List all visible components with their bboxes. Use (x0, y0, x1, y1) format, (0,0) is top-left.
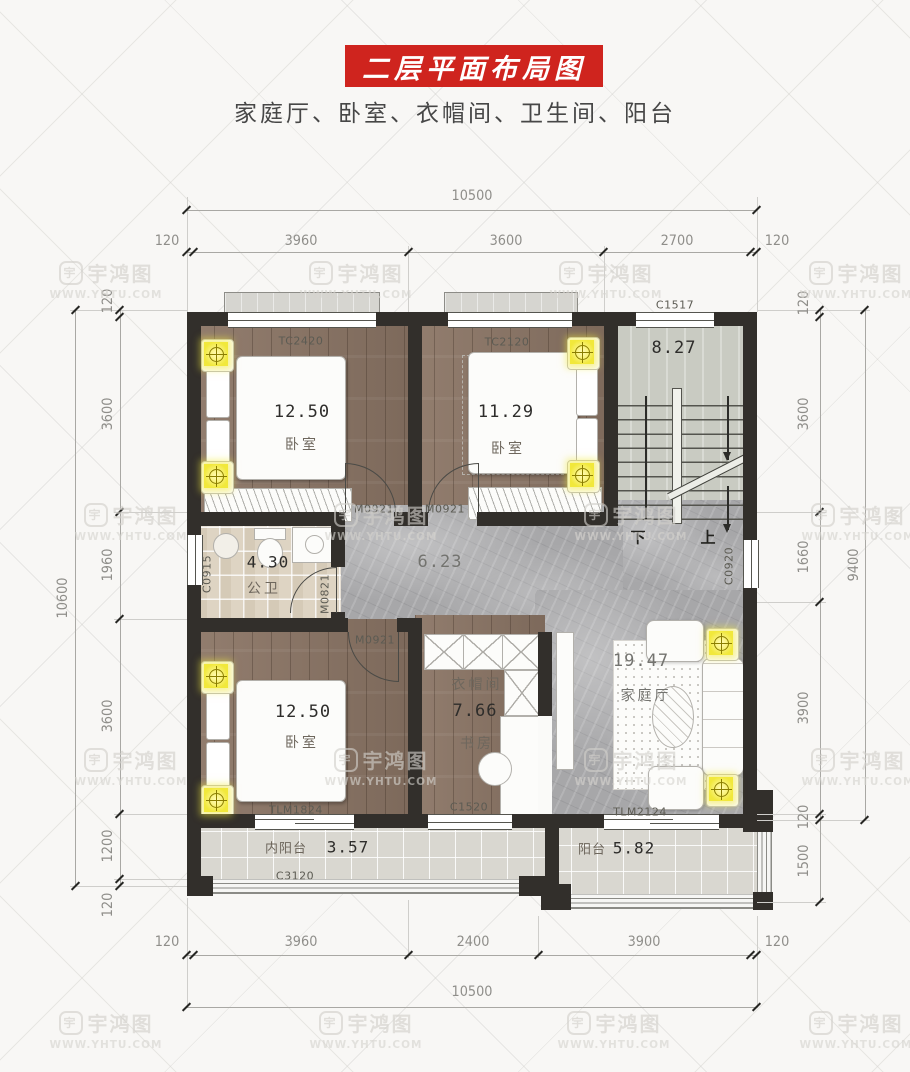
armchair (648, 766, 704, 810)
wall-segment (541, 884, 571, 910)
wall-segment (408, 618, 422, 828)
closet-unit (424, 634, 464, 670)
dim-label: 10500 (452, 188, 493, 204)
tv-cabinet (556, 632, 574, 770)
window-c1520 (428, 814, 512, 830)
extension-line (114, 879, 187, 880)
watermark: 宇宇鸿图WWW.YHTU.COM (792, 745, 910, 788)
extension-line (114, 814, 187, 815)
door-code: TLM2124 (613, 806, 667, 819)
window-code: TC2420 (279, 335, 324, 348)
washbasin (213, 533, 239, 559)
dimension-line (75, 310, 76, 886)
balcony-railing-right (757, 830, 772, 900)
window-tc2120 (448, 312, 572, 328)
room-name: 内阳台 (265, 838, 307, 857)
dim-tick (752, 1002, 761, 1011)
dim-label: 120 (100, 289, 116, 314)
inner-balcony-window-c3120 (213, 879, 519, 894)
room-name: 衣帽间 (452, 674, 503, 694)
dim-label: 120 (765, 934, 790, 950)
watermark-logo-icon: 宇 (811, 748, 835, 772)
ceiling-light-icon (204, 664, 228, 688)
dim-label: 120 (796, 291, 812, 316)
watermark: 宇宇鸿图WWW.YHTU.COM (40, 1008, 172, 1051)
ceiling-light-icon (204, 788, 228, 812)
extension-line (70, 310, 187, 311)
d im-label: 3600 (100, 700, 116, 733)
extension-line (757, 197, 758, 312)
wall-segment (743, 312, 757, 540)
wall-segment (331, 526, 345, 567)
wall-segment (604, 312, 618, 526)
room-name: 卧室 (491, 438, 525, 458)
room-area: 19.47 (613, 651, 669, 671)
room-name: 公卫 (247, 578, 281, 598)
ceiling-light-icon (709, 777, 733, 801)
watermark-logo-icon: 宇 (309, 261, 333, 285)
watermark-logo-icon: 宇 (59, 261, 83, 285)
dim-label: 120 (155, 233, 180, 249)
room-area: 8.27 (652, 338, 697, 358)
page-subtitle: 家庭厅、卧室、衣帽间、卫生间、阳台 (0, 94, 910, 128)
wall-segment (187, 312, 201, 535)
door-code: TLM1824 (269, 804, 323, 817)
inner-balcony-floor (195, 822, 545, 884)
door-code: M0821 (319, 574, 332, 614)
dim-label: 1500 (796, 845, 812, 878)
pillow (206, 366, 230, 418)
dim-label: 2700 (661, 233, 694, 249)
balcony-railing (545, 894, 773, 909)
room-area: 6.23 (418, 552, 463, 572)
watermark-logo-icon: 宇 (567, 1011, 591, 1035)
watermark-logo-icon: 宇 (59, 1011, 83, 1035)
closet-unit (502, 634, 540, 670)
dimension-line (187, 210, 757, 211)
window-tc2420 (228, 312, 376, 328)
stair-arrow-line (727, 396, 729, 460)
wall-segment (187, 512, 345, 526)
stair-treads-right (682, 392, 743, 520)
room-name: 家庭厅 (621, 685, 672, 705)
closet-unit (463, 634, 503, 670)
watermark-logo-icon: 宇 (84, 748, 108, 772)
room-area: 5.82 (613, 839, 656, 858)
window-c1517 (636, 312, 714, 328)
pillow (576, 366, 598, 416)
room-area: 12.50 (274, 402, 330, 422)
ceiling-light-icon (709, 631, 733, 655)
window-code: C3120 (276, 870, 314, 883)
door-code: M0921 (355, 634, 395, 647)
stair-arrow-head (723, 524, 731, 533)
door-code: M0921 (425, 503, 465, 516)
cloakroom-entry-floor (538, 716, 552, 814)
watermark-logo-icon: 宇 (559, 261, 583, 285)
wall-segment (408, 312, 422, 526)
ceiling-light-icon (570, 340, 594, 364)
sofa (702, 658, 744, 776)
dim-label: 3600 (490, 233, 523, 249)
wall-segment (354, 814, 428, 828)
dim-label: 3600 (796, 398, 812, 431)
dimension-line (187, 1007, 757, 1008)
stair-up-label: 上 (700, 527, 715, 548)
dim-label: 10600 (55, 578, 71, 619)
watermark-logo-icon: 宇 (84, 503, 108, 527)
watermark-logo-icon: 宇 (809, 1011, 833, 1035)
dimension-line (187, 252, 757, 253)
pillow (206, 690, 230, 740)
room-name: 阳台 (578, 839, 606, 858)
room-name: 卧室 (285, 732, 319, 752)
watermark: 宇宇鸿图WWW.YHTU.COM (65, 500, 197, 543)
room-area: 12.50 (275, 702, 331, 722)
wall-segment (545, 822, 559, 886)
extension-line (408, 900, 409, 958)
desk-chair (478, 752, 512, 786)
window-code: C0915 (201, 555, 214, 593)
dim-label: 2400 (457, 934, 490, 950)
door-code: M0921 (354, 503, 394, 516)
dim-label: 10500 (452, 984, 493, 1000)
dim-label: 3900 (628, 934, 661, 950)
wall-segment (719, 814, 757, 828)
ceiling-light-icon (204, 464, 228, 488)
room-area: 7.66 (453, 701, 498, 721)
pillow (206, 742, 230, 790)
dim-label: 1200 (100, 830, 116, 863)
watermark: 宇宇鸿图WWW.YHTU.COM (300, 1008, 432, 1051)
window-code: TC2120 (485, 336, 530, 349)
wall-segment (538, 632, 552, 716)
closet-unit (504, 670, 540, 716)
stair-arrow-head (723, 452, 731, 461)
room-area: 3.57 (327, 838, 370, 857)
ceiling-light-icon (570, 463, 594, 487)
dim-label: 120 (155, 934, 180, 950)
watermark: 宇宇鸿图WWW.YHTU.COM (790, 1008, 910, 1051)
wall-segment (187, 814, 255, 828)
wall-segment (743, 588, 757, 790)
wall-segment (753, 892, 773, 910)
dim-label: 1660 (796, 541, 812, 574)
watermark: 宇宇鸿图WWW.YHTU.COM (548, 1008, 680, 1051)
balcony-floor (545, 822, 760, 898)
stair-down-label: 下 (630, 527, 645, 548)
dim-label: 120 (765, 233, 790, 249)
window-code: C1517 (656, 299, 694, 312)
extension-line (408, 246, 409, 312)
extension-line (757, 916, 758, 1008)
window-c0920 (743, 540, 759, 588)
dim-label: 120 (100, 893, 116, 918)
room-name: 卧室 (285, 434, 319, 454)
dim-label: 3900 (796, 692, 812, 725)
ceiling-light-icon (204, 342, 228, 366)
extension-line (114, 619, 187, 620)
wall-segment (477, 512, 604, 526)
dim-label: 120 (796, 805, 812, 830)
wall-segment (187, 618, 348, 632)
dimension-line (865, 310, 866, 820)
wall-segment (394, 512, 428, 526)
extension-line (757, 820, 870, 821)
wall-segment (187, 876, 213, 896)
watermark-logo-icon: 宇 (809, 261, 833, 285)
dim-label: 3960 (285, 233, 318, 249)
dimension-line (120, 310, 121, 886)
stair-stringer (672, 388, 682, 524)
room-area: 11.29 (478, 402, 534, 422)
dimension-line (187, 955, 757, 956)
dim-label: 3600 (100, 398, 116, 431)
dim-label: 3960 (285, 934, 318, 950)
stair-arrow-line (645, 396, 647, 520)
room-area: 4.30 (247, 553, 290, 572)
pillow (576, 418, 598, 466)
window-code: C1520 (450, 801, 488, 814)
page-title: 二层平面布局图 (345, 45, 603, 87)
sink-bowl (305, 535, 324, 554)
dim-label: 1960 (100, 549, 116, 582)
watermark-logo-icon: 宇 (319, 1011, 343, 1035)
floor-plan-page: 二层平面布局图 家庭厅、卧室、衣帽间、卫生间、阳台 (0, 0, 910, 1072)
room-name: 书房 (460, 733, 494, 753)
dim-label: 9400 (846, 549, 862, 582)
watermark: 宇宇鸿图WWW.YHTU.COM (65, 745, 197, 788)
extension-line (757, 310, 870, 311)
extension-line (604, 246, 605, 312)
window-code: C0920 (723, 547, 736, 585)
extension-line (114, 512, 187, 513)
watermark: 宇宇鸿图WWW.YHTU.COM (792, 500, 910, 543)
extension-line (70, 886, 187, 887)
